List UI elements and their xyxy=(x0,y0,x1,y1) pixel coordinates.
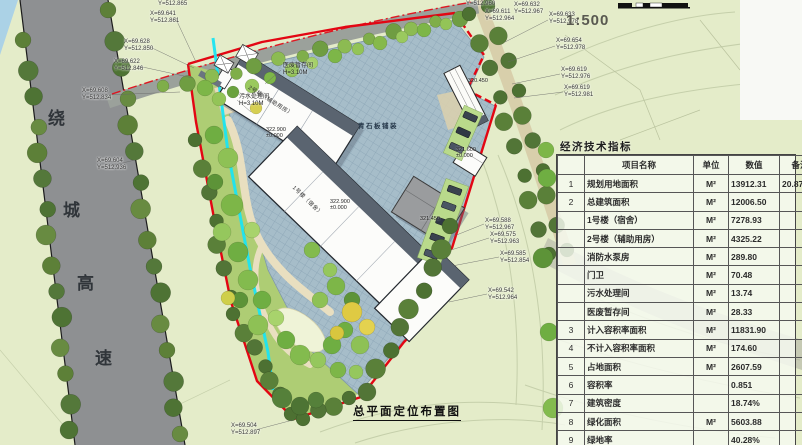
cell-num xyxy=(558,266,585,284)
cell-value: 5603.88 xyxy=(729,412,780,430)
header-value: 数值 xyxy=(729,156,780,175)
cell-unit: M² xyxy=(694,248,729,266)
cell-value: 0.851 xyxy=(729,376,780,394)
table-row: 2号楼（辅助用房）M²4325.22 xyxy=(558,229,802,247)
cell-name: 2号楼（辅助用房） xyxy=(585,229,694,247)
header-unit: 单位 xyxy=(694,156,729,175)
cell-num xyxy=(558,284,585,302)
cell-value: 13912.31 xyxy=(729,175,780,193)
cell-num: 9 xyxy=(558,431,585,445)
table-row: 2总建筑面积M²12006.50 xyxy=(558,193,802,211)
cell-name: 消防水泵房 xyxy=(585,248,694,266)
cell-value: 28.33 xyxy=(729,303,780,321)
page-title: 总平面定位布置图 xyxy=(353,403,461,421)
cell-num: 1 xyxy=(558,175,585,193)
cell-value: 13.74 xyxy=(729,284,780,302)
road-name-char: 城 xyxy=(63,196,80,221)
cell-note xyxy=(780,211,802,229)
econ-table-title: 经济技术指标 xyxy=(560,139,632,154)
cell-num: 5 xyxy=(558,357,585,375)
table-row: 医废暂存间M²28.33 xyxy=(558,303,802,321)
cell-note xyxy=(780,193,802,211)
cell-unit: M² xyxy=(694,357,729,375)
table-row: 门卫M²70.48 xyxy=(558,266,802,284)
header-num xyxy=(558,156,585,175)
cell-unit xyxy=(694,431,729,445)
cell-name: 建筑密度 xyxy=(585,394,694,412)
table-row: 1规划用地面积M²13912.3120.87亩 xyxy=(558,175,802,193)
cell-num xyxy=(558,248,585,266)
cell-num: 8 xyxy=(558,412,585,430)
cell-note xyxy=(780,266,802,284)
cell-value: 12006.50 xyxy=(729,193,780,211)
table-row: 污水处理间M²13.74 xyxy=(558,284,802,302)
cell-unit: M² xyxy=(694,211,729,229)
cell-name: 门卫 xyxy=(585,266,694,284)
cell-unit xyxy=(694,376,729,394)
table-row: 3计入容积率面积M²11831.90 xyxy=(558,321,802,339)
cell-name: 污水处理间 xyxy=(585,284,694,302)
cell-unit: M² xyxy=(694,266,729,284)
cell-unit: M² xyxy=(694,229,729,247)
road-name-char: 高 xyxy=(77,269,94,294)
cell-note xyxy=(780,284,802,302)
cell-value: 40.28% xyxy=(729,431,780,445)
cell-note xyxy=(780,357,802,375)
cell-value: 289.80 xyxy=(729,248,780,266)
table-row: 4不计入容积率面积M²174.60 xyxy=(558,339,802,357)
cell-value: 70.48 xyxy=(729,266,780,284)
cell-unit: M² xyxy=(694,284,729,302)
table-row: 消防水泵房M²289.80 xyxy=(558,248,802,266)
cell-note xyxy=(780,412,802,430)
cell-value: 7278.93 xyxy=(729,211,780,229)
cell-name: 1号楼（宿舍） xyxy=(585,211,694,229)
cell-name: 规划用地面积 xyxy=(585,175,694,193)
cell-value: 4325.22 xyxy=(729,229,780,247)
scale-text: 1:500 xyxy=(566,12,609,29)
cell-name: 占地面积 xyxy=(585,357,694,375)
table-row: 5占地面积M²2607.59 xyxy=(558,357,802,375)
cell-num: 3 xyxy=(558,321,585,339)
cell-num: 7 xyxy=(558,394,585,412)
econ-table-panel: 项目名称 单位 数值 备注 1规划用地面积M²13912.3120.87亩2总建… xyxy=(556,154,796,445)
cell-note xyxy=(780,229,802,247)
header-note: 备注 xyxy=(780,156,802,175)
cell-note xyxy=(780,376,802,394)
site-plan-page: Y=512.865X=69.641 Y=512.861X=69.628 Y=51… xyxy=(0,0,802,445)
cell-name: 计入容积率面积 xyxy=(585,321,694,339)
table-row: 8绿化面积M²5603.88 xyxy=(558,412,802,430)
cell-value: 18.74% xyxy=(729,394,780,412)
cell-note xyxy=(780,394,802,412)
cell-num: 6 xyxy=(558,376,585,394)
scale-bar xyxy=(618,3,690,9)
table-row: 7建筑密度18.74% xyxy=(558,394,802,412)
cell-unit: M² xyxy=(694,412,729,430)
table-row: 6容积率0.851 xyxy=(558,376,802,394)
cell-name: 绿化面积 xyxy=(585,412,694,430)
cell-name: 不计入容积率面积 xyxy=(585,339,694,357)
header-name: 项目名称 xyxy=(585,156,694,175)
cell-note xyxy=(780,321,802,339)
cell-note xyxy=(780,248,802,266)
road-name-char: 绕 xyxy=(48,104,65,129)
cell-name: 容积率 xyxy=(585,376,694,394)
cell-num xyxy=(558,303,585,321)
cell-value: 11831.90 xyxy=(729,321,780,339)
cell-unit: M² xyxy=(694,303,729,321)
cell-value: 2607.59 xyxy=(729,357,780,375)
cell-name: 医废暂存间 xyxy=(585,303,694,321)
cell-num xyxy=(558,211,585,229)
road-name-char: 速 xyxy=(95,344,112,369)
cell-note xyxy=(780,339,802,357)
cell-note xyxy=(780,431,802,445)
cell-unit xyxy=(694,394,729,412)
cell-note: 20.87亩 xyxy=(780,175,802,193)
table-row: 1号楼（宿舍）M²7278.93 xyxy=(558,211,802,229)
cell-note xyxy=(780,303,802,321)
sheet-corner xyxy=(740,0,802,120)
cell-num xyxy=(558,229,585,247)
table-row: 9绿地率40.28% xyxy=(558,431,802,445)
cell-unit: M² xyxy=(694,193,729,211)
cell-value: 174.60 xyxy=(729,339,780,357)
cell-unit: M² xyxy=(694,175,729,193)
econ-header-row: 项目名称 单位 数值 备注 xyxy=(558,156,802,175)
cell-unit: M² xyxy=(694,321,729,339)
cell-name: 绿地率 xyxy=(585,431,694,445)
cell-num: 2 xyxy=(558,193,585,211)
cell-name: 总建筑面积 xyxy=(585,193,694,211)
cell-unit: M² xyxy=(694,339,729,357)
cell-num: 4 xyxy=(558,339,585,357)
econ-table: 项目名称 单位 数值 备注 1规划用地面积M²13912.3120.87亩2总建… xyxy=(557,155,802,445)
